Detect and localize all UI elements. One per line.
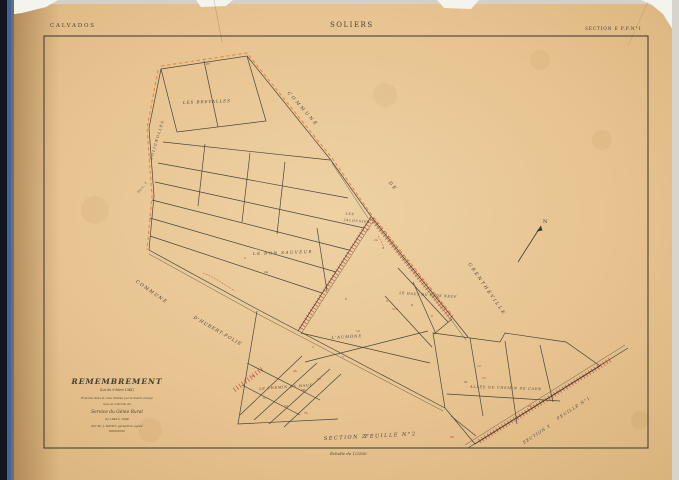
title-block-line5: Par M. J. NICET, géomètre agréé xyxy=(90,424,143,428)
parcel-number: 53 xyxy=(284,404,288,408)
title-block-line1: Exécuté dans la zone limitée par le lisé… xyxy=(80,396,153,400)
parcel-number: 112 xyxy=(392,307,398,311)
binding-edge xyxy=(0,0,14,480)
parcel-number: 7 xyxy=(342,355,344,359)
parcel-number: 12 xyxy=(477,364,481,368)
parcel-number: 27 xyxy=(206,62,210,66)
parcel-number: 23 xyxy=(317,377,321,381)
header-section: SECTION E P.P.N°1 xyxy=(585,27,642,32)
title-block-title: REMEMBREMENT xyxy=(70,377,162,386)
header-department: CALVADOS xyxy=(50,23,96,29)
parcel-number: 5 xyxy=(345,297,347,301)
scanned-map-page: CALVADOS SOLIERS SECTION E P.P.N°1 xyxy=(0,0,679,480)
parcel-number: 72 xyxy=(482,376,486,380)
title-block-line2: sous le contrôle du xyxy=(103,402,131,406)
parcel-number: 14 xyxy=(264,270,268,274)
parcel-number: 9 xyxy=(386,299,388,303)
parcel-number: 8 xyxy=(431,314,433,318)
parcel-number: 49 xyxy=(251,374,255,378)
parcel-number: 24 xyxy=(374,238,378,242)
parcel-number: 9 xyxy=(382,246,384,250)
parcel-number: 51 xyxy=(263,396,267,400)
parcel-number: 27 xyxy=(366,228,370,232)
title-block-line3: Service du Génie Rural xyxy=(91,410,143,415)
parcel-number: 26 xyxy=(528,404,532,408)
parcel-number: 9 xyxy=(411,303,413,307)
parcel-number: 21 xyxy=(464,380,468,384)
parcel-number: 46 xyxy=(293,369,297,373)
parcel-number: 26 xyxy=(450,435,454,439)
paper-left-shadow xyxy=(12,4,60,480)
map-canvas: CALVADOS SOLIERS SECTION E P.P.N°1 xyxy=(0,0,679,480)
parcel-number: 18 xyxy=(301,388,305,392)
parcel-number: 14 xyxy=(356,329,360,333)
parcel-number: 55 xyxy=(304,411,308,415)
title-block-line4: de 1946 à 1948 xyxy=(105,417,129,421)
north-arrow-label: N xyxy=(543,219,548,225)
parcel-number: 2 xyxy=(244,256,246,260)
footer-scale: Échelle de 1/2500 xyxy=(329,451,367,456)
title-block-law: (Loi du 9 Mars 1941) xyxy=(100,388,135,392)
parcel-number: 3 xyxy=(312,345,314,349)
header-commune-title: SOLIERS xyxy=(330,21,374,29)
